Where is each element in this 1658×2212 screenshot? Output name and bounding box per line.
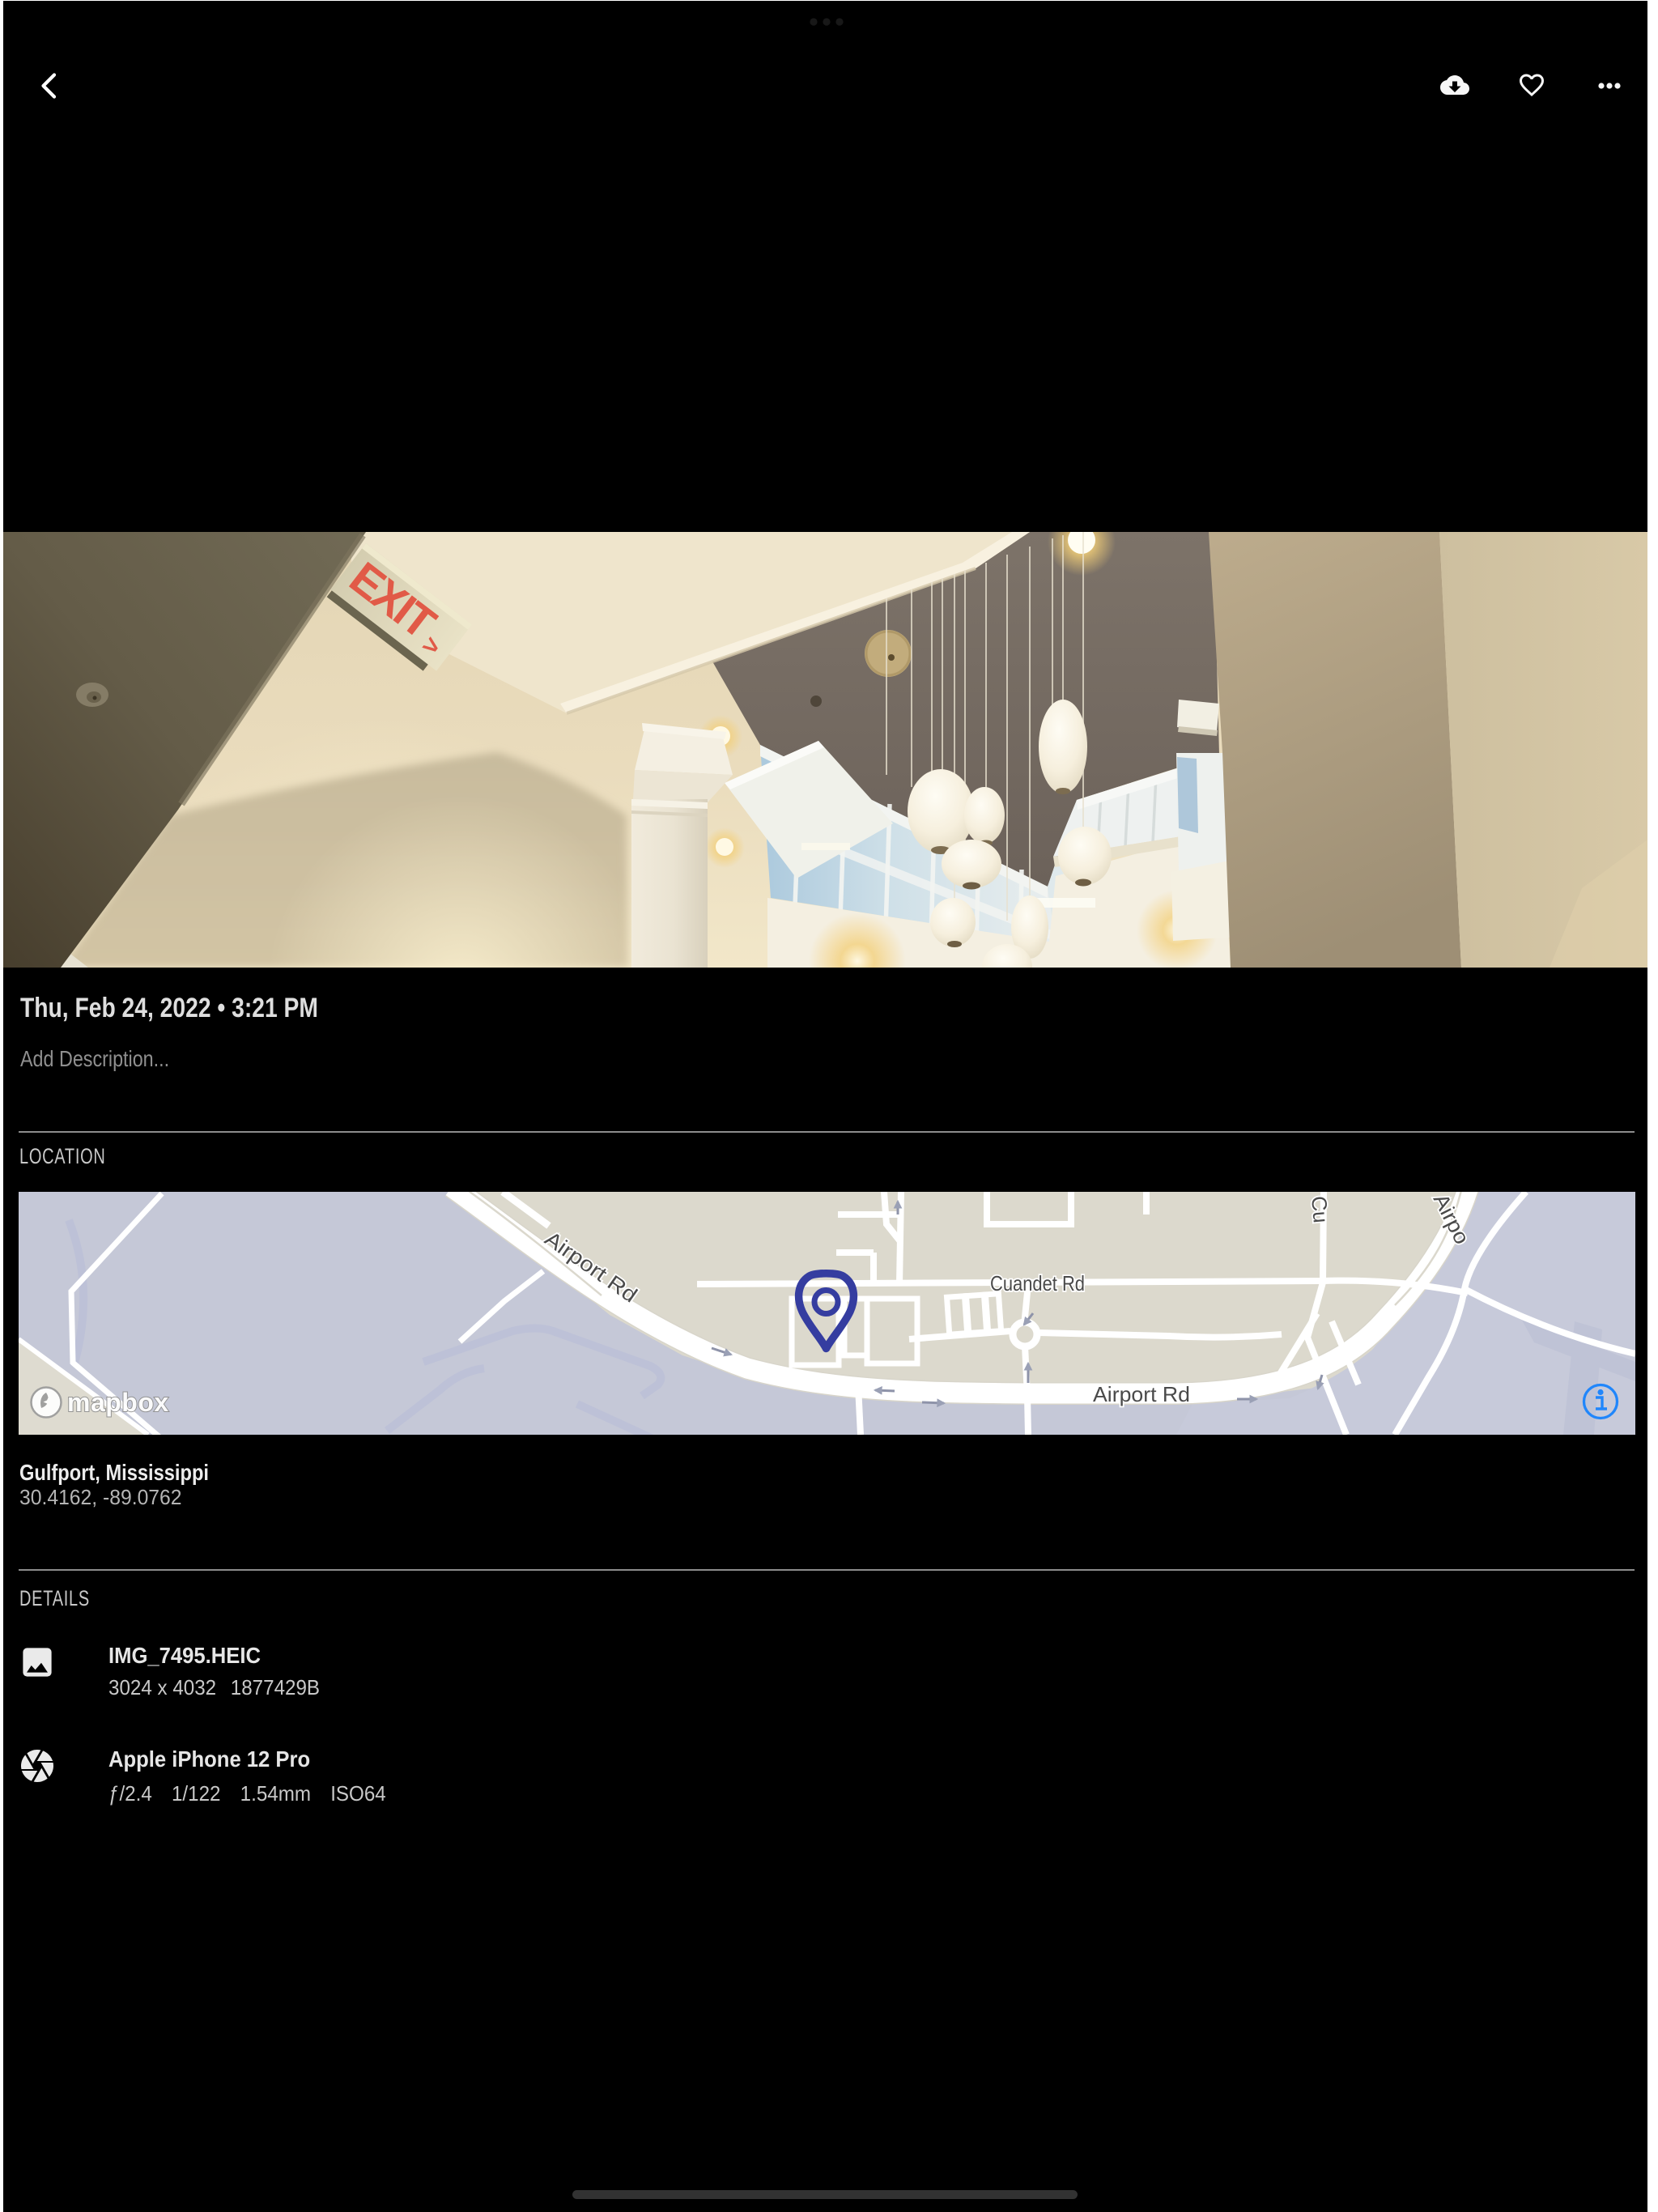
svg-text:Airport Rd: Airport Rd (1093, 1382, 1190, 1406)
svg-text:mapbox: mapbox (67, 1388, 169, 1417)
svg-text:Cuandet Rd: Cuandet Rd (990, 1271, 1085, 1295)
svg-text:Cu: Cu (1307, 1195, 1333, 1224)
